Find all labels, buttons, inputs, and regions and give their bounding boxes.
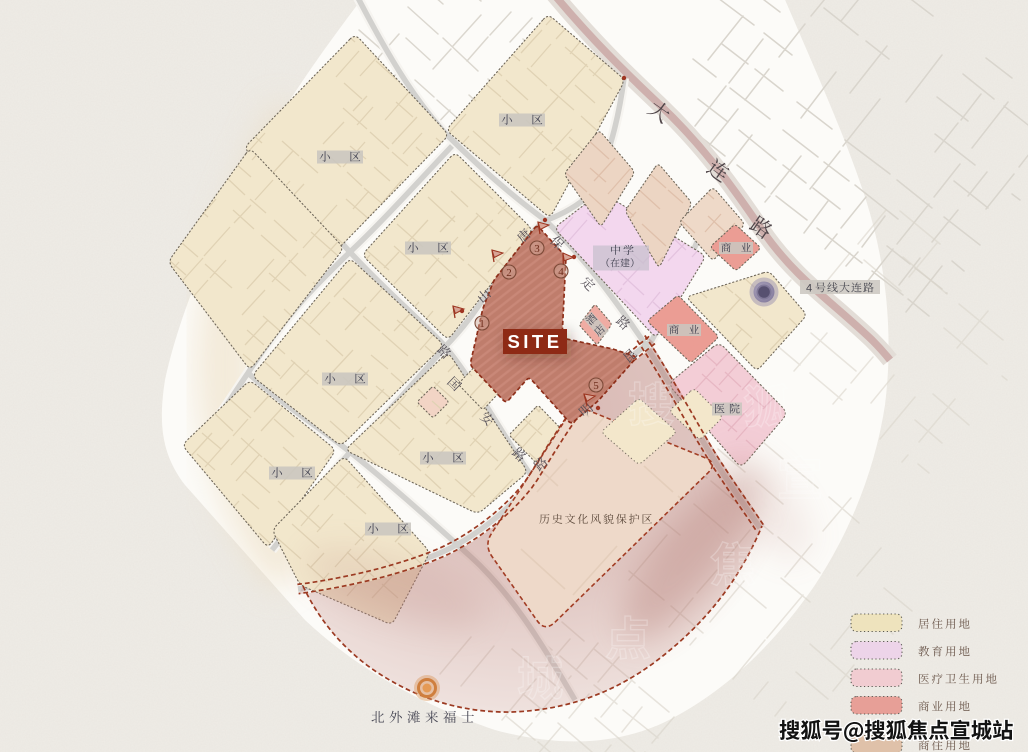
svg-text:1: 1 bbox=[479, 318, 485, 330]
svg-text:2: 2 bbox=[506, 267, 512, 279]
svg-text:3: 3 bbox=[534, 243, 540, 255]
svg-text:SITE: SITE bbox=[507, 331, 562, 352]
svg-text:4: 4 bbox=[558, 266, 564, 278]
svg-text:5: 5 bbox=[593, 380, 599, 392]
svg-text:4: 4 bbox=[806, 283, 812, 295]
